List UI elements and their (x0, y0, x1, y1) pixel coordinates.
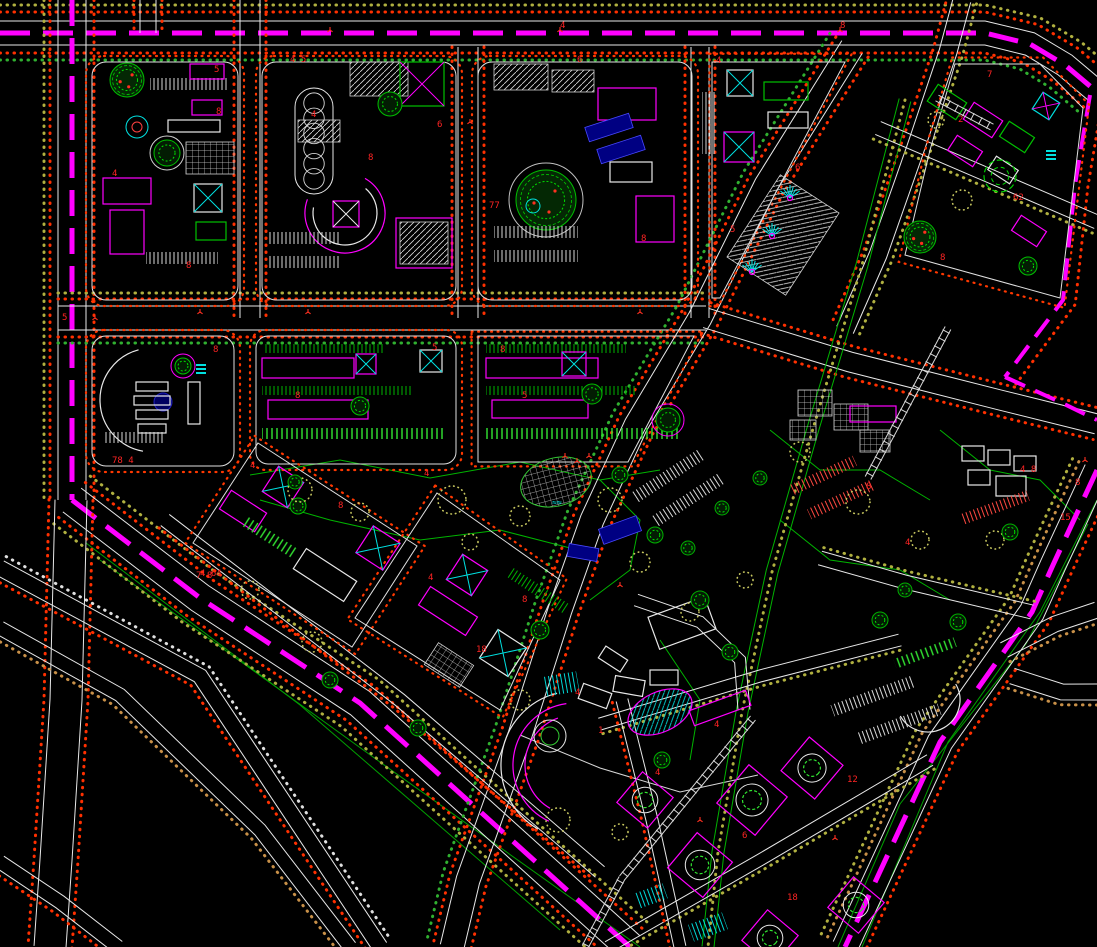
plot-number-label: 8 (213, 345, 218, 355)
plot-number-label: 4 (250, 461, 255, 471)
plot-number-label: 4 (112, 169, 117, 179)
plot-number-label: 18 (787, 893, 798, 903)
plot-number-label: 1 (598, 726, 603, 736)
plot-number-label: 77 (489, 201, 500, 211)
tree-symbol (722, 644, 738, 660)
plot-number-label: 6 (795, 163, 800, 173)
plot-number-label: 62 (1013, 193, 1024, 203)
tree-symbol (290, 498, 306, 514)
hatched-building (298, 120, 340, 142)
plot-number-label: 8 (866, 482, 871, 492)
tree-symbol (753, 471, 767, 485)
tree-symbol (531, 621, 549, 639)
plaza-grid (834, 404, 868, 430)
parking-hatch-row (150, 78, 228, 90)
plot-number-label: 8 (216, 107, 221, 117)
tree-symbol (175, 358, 191, 374)
cyan-bars-symbol (196, 364, 206, 374)
tree-symbol (681, 541, 695, 555)
hatched-building (400, 222, 448, 264)
parking-hatch-row (262, 386, 412, 395)
plot-number-label: 5 (214, 65, 219, 75)
tree-symbol (582, 384, 602, 404)
plot-number-label: 15 (1060, 513, 1071, 523)
parking-hatch-row (486, 344, 626, 353)
plot-number-label: 4 (560, 21, 565, 31)
site-plan-drawing: 58484 54686778465878 45885≈≈4487 8841844… (0, 0, 1097, 947)
plot-number-label: ≈≈ (552, 498, 562, 507)
plot-number-label: 4 5 (290, 55, 306, 65)
tree-symbol (898, 583, 912, 597)
parking-hatch-row (146, 252, 218, 264)
plot-number-label: 8 (295, 391, 300, 401)
plot-number-label: 8 (522, 595, 527, 605)
plot-number-label: 7 (987, 70, 992, 80)
tree-symbol (654, 752, 670, 768)
plot-number-label: 8 (1075, 478, 1080, 488)
parking-hatch-row (702, 92, 715, 154)
tree-cluster-symbol (516, 170, 576, 230)
plaza-grid (186, 142, 234, 174)
plaza-grid (860, 430, 890, 452)
parking-hatch-row (268, 256, 340, 268)
parking-hatch-row (104, 432, 164, 443)
plot-number-label: 8 (641, 234, 646, 244)
tree-symbol (322, 672, 338, 688)
tree-symbol (612, 467, 628, 483)
tree-symbol (647, 527, 663, 543)
tree-symbol (691, 591, 709, 609)
plot-number-label: 2 (958, 115, 963, 125)
plot-number-label: 6 (577, 55, 582, 65)
parking-hatch-row (494, 250, 578, 262)
plot-number-label: 6 (437, 120, 442, 130)
plot-number-label: 5 (522, 391, 527, 401)
plot-number-label: 4 (905, 538, 910, 548)
plot-number-label: 6 (742, 831, 747, 841)
parking-hatch-row (268, 232, 340, 244)
plot-number-label: 5 (432, 343, 437, 353)
plot-number-label: 4 (714, 720, 719, 730)
tree-symbol (1019, 257, 1037, 275)
tree-cluster-symbol (904, 221, 936, 253)
plaza-grid (790, 420, 816, 440)
plot-number-label: 8 (940, 253, 945, 263)
cad-viewport: 58484 54686778465878 45885≈≈4487 8841844… (0, 0, 1097, 947)
plot-number-label: 12 (847, 775, 858, 785)
plot-number-label: 4 (311, 110, 316, 120)
parking-hatch-row (494, 226, 578, 238)
plot-number-label: 4 (655, 768, 660, 778)
plot-number-label: 4 (716, 56, 721, 66)
tree-symbol (872, 612, 888, 628)
hatched-building (350, 62, 408, 96)
hatched-building (552, 70, 594, 92)
plot-number-label: 8 (500, 345, 505, 355)
tree-symbol (656, 408, 680, 432)
plot-number-label: 4 (424, 469, 429, 479)
hatched-building (494, 64, 548, 90)
plot-number-label: 8 (368, 153, 373, 163)
tree-symbol (1002, 524, 1018, 540)
plot-number-label: 5 (730, 225, 735, 235)
tree-symbol (410, 720, 426, 736)
parking-hatch-row (262, 428, 444, 439)
plot-number-label: 78 4 (112, 456, 134, 466)
parking-hatch-row (264, 344, 384, 353)
tree-symbol (715, 501, 729, 515)
tree-cluster-symbol (110, 63, 144, 97)
cyan-bars-symbol (1046, 150, 1056, 160)
plot-number-label: 5 (62, 313, 67, 323)
tree-symbol (378, 92, 402, 116)
plot-number-label: 4 (428, 573, 433, 583)
plot-number-label: 8 (840, 21, 845, 31)
plot-number-label: 4 (575, 688, 580, 698)
tree-symbol (154, 140, 180, 166)
tree-symbol (351, 397, 369, 415)
plot-number-label: 4 64 (200, 569, 222, 579)
plot-number-label: 18 (476, 645, 487, 655)
tree-symbol (288, 475, 302, 489)
parking-hatch-row (486, 428, 678, 439)
plot-number-label: 8 (338, 501, 343, 511)
plot-number-label: 8 (186, 261, 191, 271)
plaza-grid (798, 390, 832, 416)
plot-number-label: 4 8 (1020, 465, 1036, 475)
parking-hatch-row (486, 386, 636, 395)
tree-symbol (950, 614, 966, 630)
